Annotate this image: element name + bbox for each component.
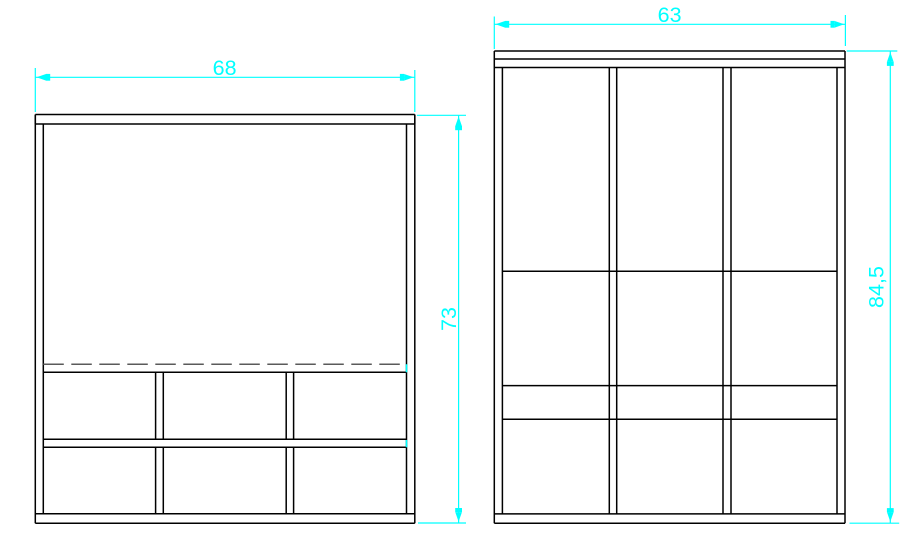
- svg-text:73: 73: [437, 307, 461, 331]
- svg-text:84,5: 84,5: [865, 266, 889, 308]
- svg-text:68: 68: [213, 56, 237, 80]
- svg-text:63: 63: [658, 3, 682, 27]
